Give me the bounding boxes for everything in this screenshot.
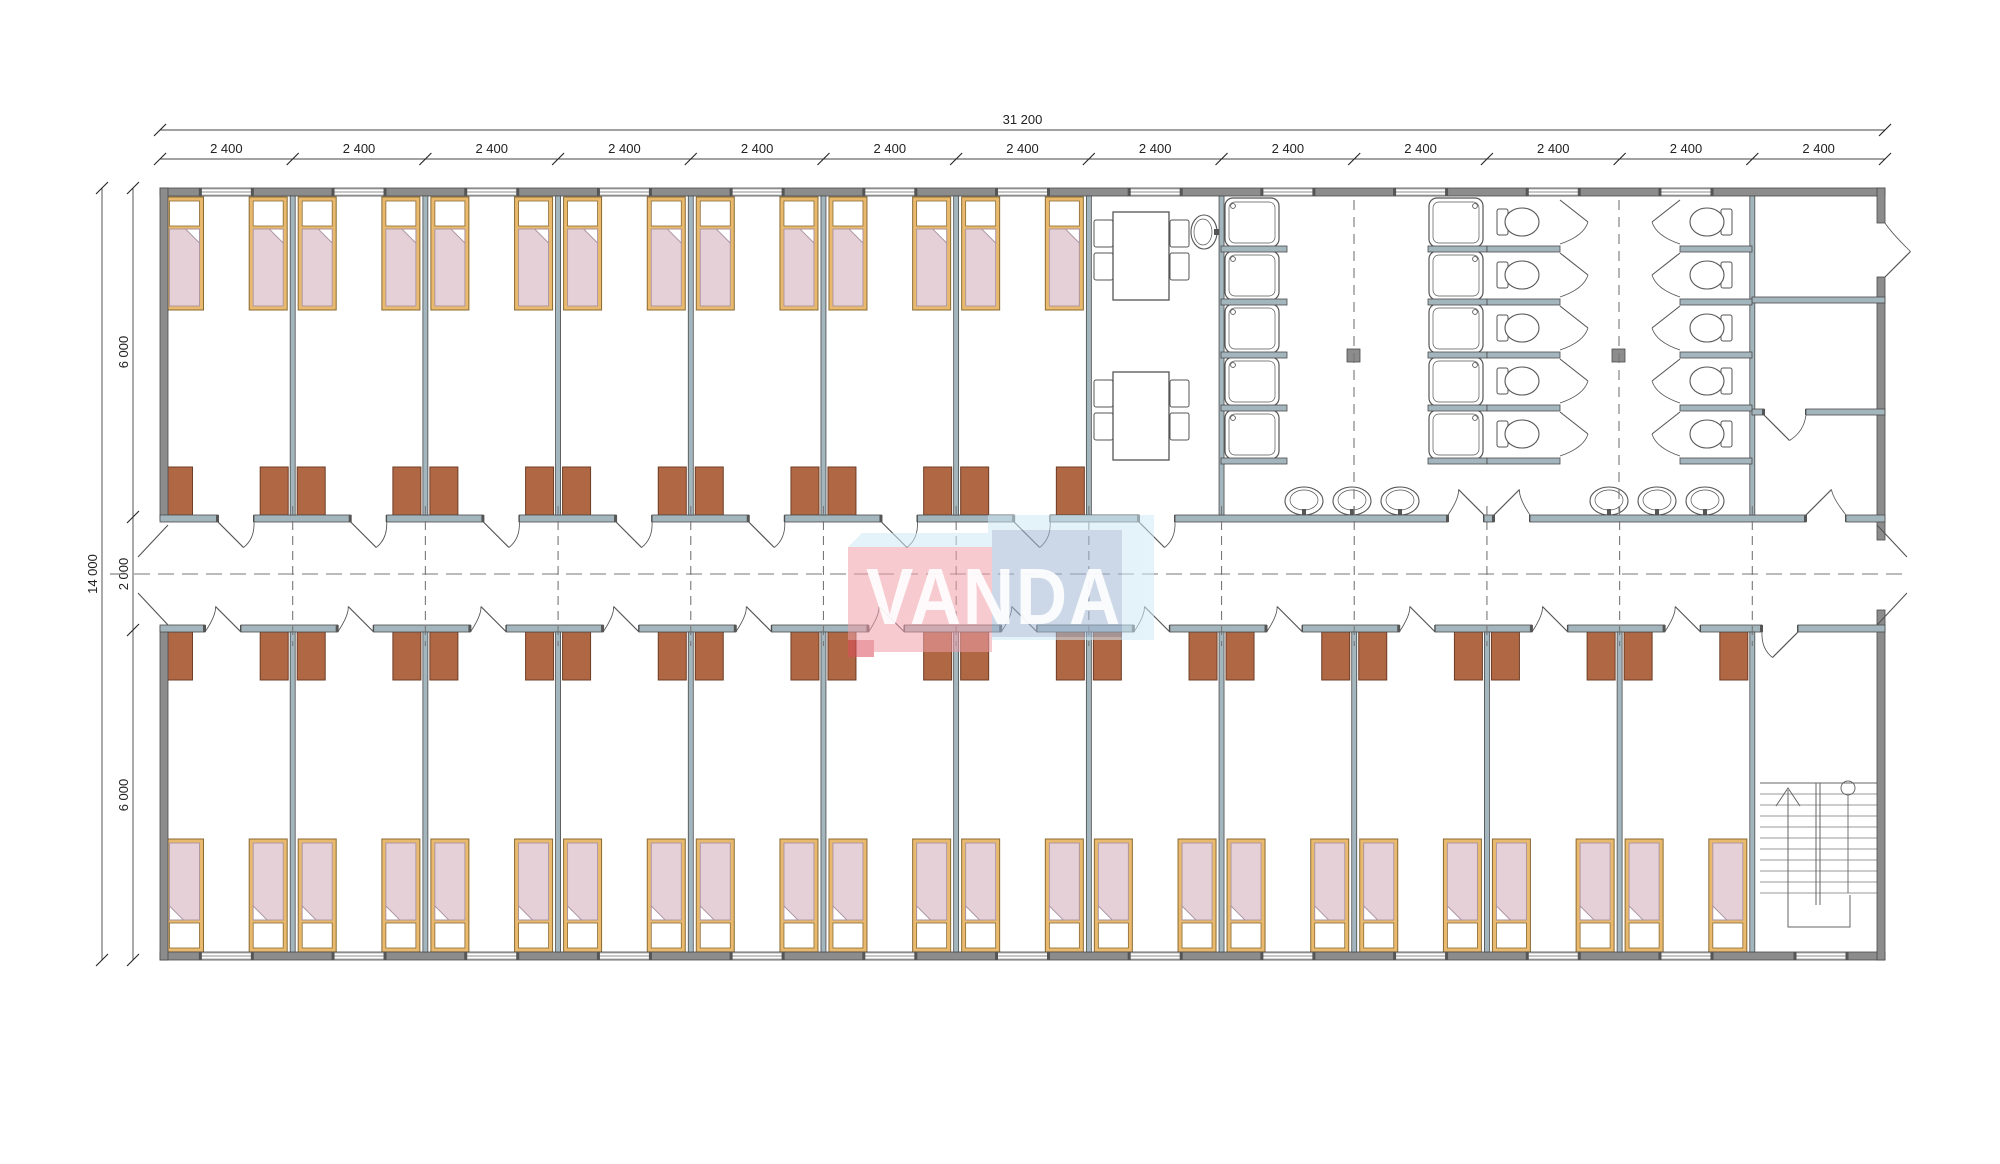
bed [780,197,818,310]
wardrobe [1322,632,1350,680]
pillow [917,923,947,948]
wall [1752,297,1885,303]
pillow [386,201,416,226]
wardrobe [1720,632,1748,680]
wardrobe [297,632,325,680]
chair [1094,380,1113,407]
blanket [833,843,863,920]
module-width-label: 2 400 [1006,141,1039,156]
wardrobe [297,467,325,515]
shower-tray [1225,304,1279,353]
toilet [1690,261,1732,289]
chair [1170,413,1189,440]
pillow [253,923,283,948]
bed [1311,839,1349,952]
blanket [386,229,416,306]
door-leaf [1652,412,1680,434]
wall [688,196,693,515]
wall [1487,405,1560,411]
bed [431,839,469,952]
door-leaf [1560,306,1588,328]
wall [785,515,882,522]
blanket [917,229,947,306]
blanket [519,843,549,920]
wardrobe [1624,632,1652,680]
shower-tray [1429,357,1483,406]
wall [556,196,561,515]
stall-doors [1560,200,1680,456]
wall [1487,352,1560,358]
blanket [568,229,598,306]
wardrobe [1587,632,1615,680]
toilet-bowl [1690,314,1724,342]
watermark-topface [848,533,992,547]
pillow [1182,923,1212,948]
door-leaf [1675,607,1701,633]
wall [1219,632,1224,952]
wash-basin [1285,487,1323,515]
bed [1709,839,1747,952]
pillow [1713,923,1743,948]
wall [652,515,749,522]
toilet-bowl [1505,420,1539,448]
door-leaf [616,522,642,548]
stair-landing [1788,893,1850,927]
blanket [519,229,549,306]
door-post [747,515,750,522]
module-width-label: 2 400 [874,141,907,156]
toilet [1497,367,1539,395]
module-width-label: 2 400 [1272,141,1305,156]
pillow [651,201,681,226]
module-width-label: 2 400 [1537,141,1570,156]
wall [1680,246,1752,252]
pillow [1364,923,1394,948]
wash-basin [1381,487,1419,515]
wall [506,625,603,632]
pillow [1098,923,1128,948]
blanket [1447,843,1477,920]
overall-width-label: 31 200 [1003,112,1043,127]
module-width-label: 2 400 [343,141,376,156]
bed [166,197,204,310]
wardrobe [563,467,591,515]
bed [829,197,867,310]
floor-plan-canvas: 31 2002 4002 4002 4002 4002 4002 4002 40… [0,0,2000,1164]
shower-tray [1429,251,1483,300]
wardrobe [563,632,591,680]
wall [954,632,959,952]
toilet [1690,314,1732,342]
wall [423,632,428,952]
door-leaf [1277,607,1303,633]
chair [1170,220,1189,247]
toilet [1497,314,1539,342]
door-leaf [1494,490,1520,516]
pillow [700,923,730,948]
table [1113,212,1169,300]
wardrobe [1189,632,1217,680]
wall [1175,515,1448,522]
door-swing [244,522,255,548]
pillow [302,201,332,226]
bed [515,839,553,952]
door-swing [603,607,614,633]
bed [298,839,336,952]
pillow [170,201,200,226]
door-swing [1652,275,1680,297]
wardrobe [1454,632,1482,680]
chair [1094,253,1113,280]
wall [160,625,205,632]
bed [962,197,1000,310]
bed [647,197,685,310]
bed [1360,839,1398,952]
bed [1492,839,1530,952]
door-swing [1652,381,1680,403]
wall [1617,632,1622,952]
pillow [568,923,598,948]
bed [829,839,867,952]
door-post [614,515,617,522]
pillow [519,923,549,948]
wardrobe [695,467,723,515]
pillow [966,923,996,948]
bed [696,197,734,310]
door-swing [1560,222,1588,244]
bed [298,197,336,310]
door-post [349,515,352,522]
toilet [1690,367,1732,395]
bed [249,839,287,952]
bed [962,839,1000,952]
door-post [1760,625,1763,632]
wall [1798,625,1885,632]
pillow [1049,201,1079,226]
door-post [1446,515,1449,522]
wall [160,515,218,522]
door-leaf [1459,490,1485,516]
pillow [651,923,681,948]
pillow [1231,923,1261,948]
wall [1487,458,1560,464]
pillow [1580,923,1610,948]
floor-plan-svg: 31 2002 4002 4002 4002 4002 4002 4002 40… [0,0,2000,1164]
door-leaf [218,522,244,548]
wall [1428,299,1487,305]
door-swing [376,522,387,548]
wall [1877,610,1885,960]
pillow [700,201,730,226]
wall [688,632,693,952]
bed [166,839,204,952]
door-leaf [1652,359,1680,381]
module-width-label: 2 400 [1670,141,1703,156]
wall [954,196,959,515]
bed [1094,839,1132,952]
door-leaf [746,607,772,633]
wall [1428,405,1487,411]
wardrobe [260,632,288,680]
wall [160,627,168,960]
door-leaf [1652,253,1680,275]
door-swing [642,522,653,548]
wall [821,196,826,515]
bed [515,197,553,310]
door-leaf [481,607,507,633]
shower-tray [1429,198,1483,247]
bed [913,839,951,952]
door-post [1804,515,1807,522]
wall [1568,625,1665,632]
pillow [386,923,416,948]
shower-tray [1429,410,1483,459]
bed [1178,839,1216,952]
wardrobe [526,632,554,680]
bed [1443,839,1481,952]
blanket [1580,843,1610,920]
blanket [1049,229,1079,306]
blanket [1182,843,1212,920]
door-post [879,515,882,522]
wall [1846,515,1885,522]
toilet-bowl [1505,314,1539,342]
pillow [1315,923,1345,948]
bed [1045,839,1083,952]
door-swing [1448,490,1459,516]
wall [1877,188,1885,223]
blanket [833,229,863,306]
bed [1045,197,1083,310]
wardrobe [393,467,421,515]
wall [1487,299,1560,305]
blanket [170,229,200,306]
module-width-label: 2 400 [210,141,243,156]
wall [387,515,484,522]
wall [1221,458,1287,464]
door-leaf [1773,632,1799,658]
door-swing [1560,275,1588,297]
wall [254,515,351,522]
door-swing [1652,222,1680,244]
module-width-label: 2 400 [741,141,774,156]
wall [1680,299,1752,305]
wardrobe [260,467,288,515]
blanket [1629,843,1659,920]
wall [1750,632,1755,952]
wall [1877,277,1885,540]
toilet [1690,208,1732,236]
wall [1680,405,1752,411]
wall [1680,352,1752,358]
wash-basin [1686,487,1724,515]
wash-basin [1333,487,1371,515]
blanket [1496,843,1526,920]
toilet-bowl [1505,208,1539,236]
wall [1428,458,1487,464]
bed [1625,839,1663,952]
shower-tray [1225,357,1279,406]
blanket [700,843,730,920]
door-swing [1790,415,1807,441]
pillow [917,201,947,226]
wardrobe [961,467,989,515]
toilet-bowl [1505,261,1539,289]
toilet [1690,420,1732,448]
shower-tray [1225,410,1279,459]
door-leaf [1652,306,1680,328]
blanket [651,843,681,920]
door-post [481,515,484,522]
toilet [1497,261,1539,289]
module-width-label: 2 400 [608,141,641,156]
wall [1530,515,1806,522]
door-leaf [1410,607,1436,633]
door-swing [338,607,349,633]
chair [1094,413,1113,440]
toilet-bowl [1690,420,1724,448]
wardrobe [695,632,723,680]
pillow [833,923,863,948]
pillow [1496,923,1526,948]
dining-table-group [1094,372,1189,460]
pillow [519,201,549,226]
wall [1352,632,1357,952]
door-leaf [1560,359,1588,381]
bed [382,197,420,310]
toilet-bowl [1505,367,1539,395]
door-swing [1652,328,1680,350]
pillow [966,201,996,226]
door-swing [1762,632,1773,658]
bed [382,839,420,952]
wall [241,625,338,632]
module-width-label: 2 400 [1802,141,1835,156]
blanket [568,843,598,920]
chair [1170,253,1189,280]
door-leaf [1885,252,1911,278]
wall [1428,352,1487,358]
wall [1487,246,1560,252]
row-label: 6 000 [116,779,131,812]
door-swing [736,607,747,633]
blanket [651,229,681,306]
bed [564,839,602,952]
wardrobe [791,467,819,515]
overall-height-label: 14 000 [85,554,100,594]
blanket [966,229,996,306]
door-swing [470,607,481,633]
blanket [1315,843,1345,920]
wall [160,188,168,520]
wall [1221,352,1287,358]
door-leaf [1806,490,1832,516]
door-swing [1885,223,1911,252]
blanket [966,843,996,920]
pillow [784,201,814,226]
bed [564,197,602,310]
bed [647,839,685,952]
wardrobe [791,632,819,680]
door-swing [1560,434,1588,456]
module-width-label: 2 400 [1139,141,1172,156]
door-swing [1832,490,1847,516]
wall [1086,632,1091,952]
door-leaf [749,522,775,548]
door-leaf [348,607,374,633]
wall [519,515,616,522]
corridor-end-door-west [138,525,168,625]
blanket [253,843,283,920]
wall [1435,625,1532,632]
wall [1303,625,1400,632]
door-leaf [351,522,377,548]
shower-tray [1225,198,1279,247]
wall [1221,299,1287,305]
blanket [302,843,332,920]
shower-tray [1225,251,1279,300]
door-swing [1532,607,1543,633]
watermark-red-accent [848,640,874,657]
wardrobe [1359,632,1387,680]
pillow [1049,923,1079,948]
door-post [216,515,219,522]
bed [780,839,818,952]
wall [639,625,736,632]
toilet [1497,208,1539,236]
door-leaf [1652,200,1680,222]
blanket [784,229,814,306]
door-leaf [614,607,640,633]
door-swing [774,522,785,548]
wall [1221,405,1287,411]
wall [1086,196,1091,515]
door-leaf [216,607,242,633]
toilet-bowl [1690,367,1724,395]
wall [821,632,826,952]
dining-table-group [1094,212,1189,300]
wardrobe [1226,632,1254,680]
bed [913,197,951,310]
wardrobe [393,632,421,680]
door-swing [1652,434,1680,456]
bed [431,197,469,310]
door-leaf [1764,415,1790,441]
pillow [833,201,863,226]
door-post [1762,409,1765,415]
door-swing [1519,490,1530,516]
toilet [1497,420,1539,448]
chair [1170,380,1189,407]
pillow [568,201,598,226]
wash-basin [1590,487,1628,515]
wash-basin [1191,215,1220,249]
blanket [435,843,465,920]
door-swing [1560,381,1588,403]
door-swing [1165,522,1176,548]
wash-basin [1638,487,1676,515]
bed [249,197,287,310]
door-post [1492,515,1495,522]
wardrobe [1056,467,1084,515]
staircase [1760,781,1877,927]
chair [1094,220,1113,247]
wardrobe [165,467,193,515]
blanket [700,229,730,306]
pillow [1447,923,1477,948]
module-width-label: 2 400 [475,141,508,156]
door-leaf [1542,607,1568,633]
